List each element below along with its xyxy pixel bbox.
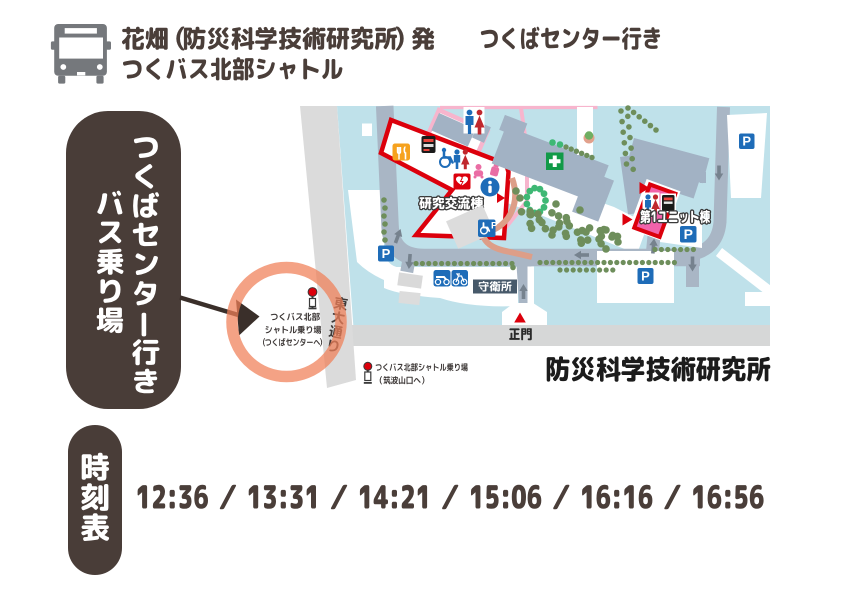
svg-text:P: P [491,221,498,232]
svg-text:P: P [382,246,391,261]
svg-text:P: P [684,226,693,242]
svg-text:P: P [742,134,751,149]
svg-text:P: P [641,268,650,283]
